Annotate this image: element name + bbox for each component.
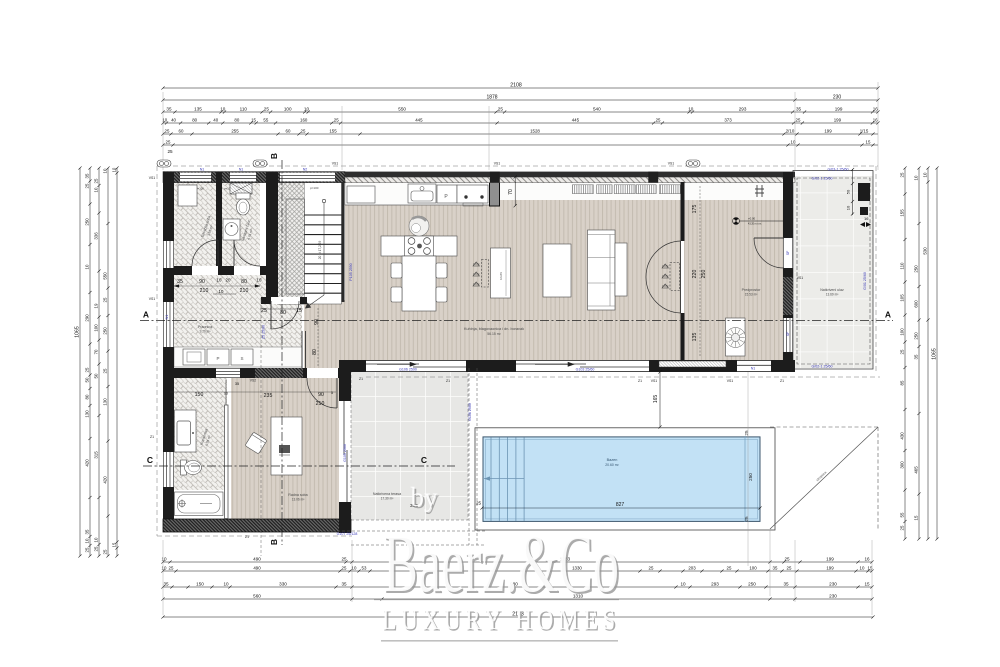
svg-text:Predprostor: Predprostor — [742, 288, 762, 292]
svg-text:Z5 25/60: Z5 25/60 — [262, 325, 266, 339]
svg-text:130: 130 — [85, 410, 90, 418]
svg-text:15: 15 — [864, 582, 870, 587]
svg-text:100: 100 — [284, 107, 292, 112]
svg-text:G106 2590: G106 2590 — [399, 368, 417, 372]
svg-text:25: 25 — [656, 118, 661, 123]
svg-text:35: 35 — [796, 107, 802, 112]
svg-text:150: 150 — [195, 392, 204, 398]
svg-text:25: 25 — [264, 107, 270, 112]
svg-text:15.53 m²: 15.53 m² — [745, 293, 758, 297]
svg-text:16: 16 — [873, 107, 879, 112]
svg-text:10: 10 — [352, 566, 357, 571]
svg-text:19: 19 — [94, 303, 99, 308]
svg-text:60: 60 — [179, 129, 184, 134]
svg-text:175: 175 — [692, 205, 698, 214]
svg-text:235: 235 — [264, 393, 273, 399]
svg-text:25: 25 — [649, 566, 654, 571]
svg-text:55: 55 — [263, 118, 268, 123]
svg-text:15: 15 — [914, 515, 919, 520]
svg-text:25: 25 — [85, 547, 90, 552]
svg-text:13.06 m²: 13.06 m² — [292, 498, 305, 502]
svg-text:1878: 1878 — [486, 95, 497, 101]
svg-text:220: 220 — [692, 270, 698, 279]
svg-text:330: 330 — [279, 582, 287, 587]
svg-text:G103 25/60: G103 25/60 — [576, 368, 595, 372]
svg-text:N1: N1 — [751, 367, 756, 371]
svg-text:5: 5 — [331, 391, 333, 395]
svg-text:25: 25 — [165, 129, 170, 134]
svg-text:35: 35 — [235, 382, 239, 386]
svg-text:17.30 m²: 17.30 m² — [381, 497, 394, 501]
svg-text:G108 2560: G108 2560 — [468, 403, 472, 421]
svg-text:Praonica: Praonica — [198, 325, 212, 329]
svg-text:9.76 m²: 9.76 m² — [200, 330, 211, 334]
svg-text:25: 25 — [900, 525, 905, 530]
svg-text:600: 600 — [914, 300, 919, 308]
svg-text:293: 293 — [711, 582, 719, 587]
svg-text:P105 2590: P105 2590 — [349, 263, 353, 280]
svg-text:A: A — [885, 310, 891, 320]
svg-text:15: 15 — [866, 140, 871, 145]
svg-text:10: 10 — [112, 167, 117, 172]
svg-text:80: 80 — [192, 118, 197, 123]
svg-text:70: 70 — [508, 189, 514, 195]
svg-text:155: 155 — [900, 209, 905, 217]
svg-text:110: 110 — [900, 262, 905, 270]
svg-text:827: 827 — [616, 502, 625, 508]
svg-text:80: 80 — [85, 394, 90, 399]
svg-text:230: 230 — [833, 95, 842, 101]
svg-text:VS1: VS1 — [494, 162, 501, 166]
svg-text:105: 105 — [900, 294, 905, 302]
svg-text:490: 490 — [253, 566, 261, 571]
svg-text:560: 560 — [253, 594, 261, 599]
svg-text:G107 25/128: G107 25/128 — [337, 532, 358, 536]
svg-text:N1: N1 — [239, 168, 244, 172]
svg-text:10: 10 — [217, 278, 222, 283]
svg-text:55: 55 — [900, 512, 905, 517]
svg-text:445: 445 — [415, 118, 423, 123]
svg-text:10: 10 — [914, 175, 919, 180]
svg-text:1/15: 1/15 — [860, 129, 869, 134]
svg-text:50: 50 — [846, 189, 851, 194]
svg-text:16: 16 — [864, 216, 869, 221]
svg-text:Z1: Z1 — [359, 377, 363, 381]
svg-text:LUXURY HOMES: LUXURY HOMES — [382, 605, 620, 636]
svg-text:10: 10 — [94, 187, 99, 192]
svg-text:25: 25 — [900, 349, 905, 354]
svg-text:10: 10 — [94, 537, 99, 542]
svg-text:by: by — [411, 482, 439, 512]
svg-text:35: 35 — [773, 566, 778, 571]
svg-text:10: 10 — [304, 107, 310, 112]
svg-text:10: 10 — [161, 557, 167, 562]
svg-text:15: 15 — [251, 118, 256, 123]
svg-text:1528: 1528 — [530, 129, 540, 134]
svg-text:540: 540 — [593, 107, 601, 112]
svg-text:Baerz.&Co: Baerz.&Co — [383, 517, 619, 610]
svg-text:10: 10 — [688, 107, 694, 112]
svg-text:135: 135 — [194, 107, 202, 112]
svg-text:250: 250 — [85, 218, 90, 226]
svg-text:+0.00: +0.00 — [748, 217, 756, 221]
svg-text:250: 250 — [914, 332, 919, 340]
svg-text:20 st 17,2/29: 20 st 17,2/29 — [318, 241, 322, 260]
svg-text:199: 199 — [826, 557, 834, 562]
svg-text:B: B — [269, 153, 279, 159]
svg-text:15: 15 — [112, 542, 117, 547]
svg-text:90: 90 — [199, 279, 205, 285]
svg-text:135: 135 — [692, 333, 698, 342]
svg-text:80: 80 — [312, 349, 318, 355]
svg-text:N2: N2 — [303, 168, 308, 172]
svg-text:290: 290 — [85, 314, 90, 322]
svg-text:90: 90 — [314, 319, 320, 325]
svg-text:Z1: Z1 — [446, 379, 450, 383]
svg-text:VS2: VS2 — [250, 379, 257, 383]
svg-text:25: 25 — [103, 297, 108, 302]
svg-text:VS1: VS1 — [332, 162, 339, 166]
svg-text:S: S — [240, 356, 243, 361]
svg-text:20.60 m²: 20.60 m² — [605, 463, 619, 467]
svg-text:230: 230 — [829, 594, 837, 599]
svg-text:25: 25 — [169, 566, 174, 571]
svg-text:10: 10 — [846, 205, 851, 210]
svg-text:35: 35 — [166, 107, 172, 112]
svg-text:35: 35 — [783, 582, 789, 587]
svg-text:35: 35 — [163, 582, 169, 587]
svg-text:199: 199 — [835, 107, 843, 112]
svg-text:60: 60 — [286, 129, 291, 134]
svg-text:Z1: Z1 — [150, 435, 154, 439]
svg-text:50: 50 — [94, 373, 99, 378]
svg-text:10: 10 — [923, 172, 928, 177]
svg-text:Natkriveni ulaz: Natkriveni ulaz — [820, 288, 844, 292]
svg-text:35: 35 — [85, 529, 90, 534]
svg-text:10: 10 — [860, 566, 865, 571]
svg-text:80: 80 — [241, 279, 247, 285]
svg-text:40: 40 — [171, 118, 176, 123]
svg-text:P: P — [216, 356, 219, 361]
svg-text:1065: 1065 — [932, 348, 938, 360]
svg-text:25: 25 — [85, 367, 90, 372]
svg-text:Natkrivena terasa: Natkrivena terasa — [373, 492, 401, 496]
svg-text:155: 155 — [329, 129, 337, 134]
svg-text:25: 25 — [744, 430, 749, 436]
svg-text:25: 25 — [94, 178, 99, 183]
svg-text:VS1: VS1 — [149, 176, 156, 180]
svg-text:VS1: VS1 — [651, 379, 658, 383]
svg-text:G/01 25/60: G/01 25/60 — [863, 272, 867, 290]
svg-text:25: 25 — [166, 140, 171, 145]
svg-text:G/02-1 25/60: G/02-1 25/60 — [812, 177, 833, 181]
svg-text:SF: SF — [786, 331, 790, 336]
svg-text:KAMIN: KAMIN — [499, 272, 503, 280]
svg-text:315: 315 — [94, 451, 99, 459]
svg-text:VS1: VS1 — [797, 276, 804, 280]
svg-text:420: 420 — [85, 459, 90, 467]
svg-text:373: 373 — [724, 118, 732, 123]
svg-text:10: 10 — [257, 278, 262, 283]
svg-text:250: 250 — [914, 265, 919, 273]
svg-text:250: 250 — [701, 270, 707, 279]
svg-text:40: 40 — [213, 118, 218, 123]
svg-text:430: 430 — [900, 432, 905, 440]
svg-text:10: 10 — [223, 582, 229, 587]
svg-text:Bazen: Bazen — [607, 458, 618, 462]
svg-text:C: C — [147, 455, 153, 465]
svg-text:35: 35 — [85, 173, 90, 178]
svg-text:203: 203 — [688, 566, 696, 571]
svg-text:25: 25 — [103, 368, 108, 373]
svg-text:A: A — [143, 310, 149, 320]
svg-text:10: 10 — [219, 289, 224, 294]
svg-text:25: 25 — [744, 516, 749, 522]
svg-text:p=100: p=100 — [310, 186, 319, 190]
svg-text:90: 90 — [318, 392, 324, 398]
svg-text:550: 550 — [398, 107, 406, 112]
svg-text:VS1: VS1 — [727, 379, 734, 383]
svg-text:199: 199 — [834, 118, 842, 123]
svg-text:230: 230 — [829, 582, 837, 587]
svg-text:16: 16 — [864, 557, 870, 562]
svg-text:165: 165 — [653, 395, 659, 404]
svg-text:53: 53 — [362, 566, 367, 571]
svg-text:100: 100 — [900, 328, 905, 336]
svg-text:10: 10 — [680, 582, 686, 587]
svg-text:550: 550 — [103, 272, 108, 280]
svg-text:210: 210 — [200, 288, 209, 294]
svg-text:465: 465 — [914, 466, 919, 474]
svg-text:110: 110 — [240, 107, 248, 112]
svg-text:B: B — [269, 539, 279, 545]
svg-text:100: 100 — [749, 566, 757, 571]
svg-text:Z1: Z1 — [780, 379, 784, 383]
svg-text:300: 300 — [900, 461, 905, 469]
svg-text:35: 35 — [177, 279, 183, 285]
svg-text:25: 25 — [900, 172, 905, 177]
svg-text:G/02-1 25/60: G/02-1 25/60 — [812, 365, 833, 369]
svg-text:43.20 m.n.m.: 43.20 m.n.m. — [748, 223, 762, 226]
svg-text:Radna soba: Radna soba — [288, 493, 307, 497]
svg-text:210: 210 — [316, 401, 325, 407]
svg-text:C: C — [421, 455, 427, 465]
svg-text:50: 50 — [85, 377, 90, 382]
svg-text:25: 25 — [85, 183, 90, 188]
svg-text:85: 85 — [900, 380, 905, 385]
svg-text:25: 25 — [94, 546, 99, 551]
svg-text:G/03-1 25/60: G/03-1 25/60 — [828, 168, 849, 172]
svg-text:445: 445 — [572, 118, 580, 123]
svg-text:130: 130 — [103, 398, 108, 406]
svg-text:35: 35 — [914, 354, 919, 359]
svg-text:25: 25 — [784, 557, 790, 562]
svg-text:250: 250 — [748, 582, 756, 587]
svg-text:25: 25 — [341, 557, 347, 562]
svg-text:2108: 2108 — [510, 83, 522, 89]
svg-text:SF: SF — [786, 250, 790, 255]
svg-text:2/10: 2/10 — [786, 129, 795, 134]
svg-text:199: 199 — [824, 129, 832, 134]
svg-text:10: 10 — [162, 566, 167, 571]
svg-text:25: 25 — [301, 129, 306, 134]
svg-text:80: 80 — [234, 118, 239, 123]
svg-text:255: 255 — [231, 129, 239, 134]
svg-text:150: 150 — [196, 582, 204, 587]
svg-text:10: 10 — [220, 107, 226, 112]
svg-text:Z1: Z1 — [638, 379, 642, 383]
svg-text:293: 293 — [739, 107, 747, 112]
svg-text:20: 20 — [226, 278, 231, 283]
svg-text:530: 530 — [923, 247, 928, 255]
svg-text:56.15 m²: 56.15 m² — [487, 332, 501, 336]
svg-text:210: 210 — [240, 288, 249, 294]
svg-text:10: 10 — [85, 264, 90, 269]
svg-text:80: 80 — [280, 310, 286, 316]
svg-text:25: 25 — [167, 149, 173, 154]
svg-text:25: 25 — [787, 566, 792, 571]
svg-text:16: 16 — [873, 118, 878, 123]
svg-text:Z1: Z1 — [245, 535, 249, 539]
svg-text:G105 2560: G105 2560 — [343, 444, 347, 462]
svg-text:1065: 1065 — [75, 326, 81, 338]
svg-text:25: 25 — [498, 107, 504, 112]
svg-text:N1: N1 — [200, 168, 205, 172]
svg-text:70: 70 — [94, 349, 99, 354]
svg-text:25: 25 — [103, 549, 108, 554]
svg-text:199: 199 — [826, 566, 834, 571]
svg-text:250: 250 — [103, 327, 108, 335]
svg-text:420: 420 — [103, 476, 108, 484]
svg-text:160: 160 — [300, 118, 308, 123]
svg-text:35: 35 — [341, 582, 347, 587]
svg-text:VS1: VS1 — [149, 297, 156, 301]
svg-text:25: 25 — [727, 566, 732, 571]
svg-text:13.69 m²: 13.69 m² — [826, 293, 839, 297]
svg-text:Kuhinja, blagovaonica i dn. bo: Kuhinja, blagovaonica i dn. boravak — [464, 327, 524, 331]
svg-text:10: 10 — [85, 538, 90, 543]
svg-text:250: 250 — [748, 473, 753, 481]
svg-text:336: 336 — [94, 232, 99, 240]
svg-text:25: 25 — [796, 118, 801, 123]
svg-text:25: 25 — [476, 501, 482, 506]
svg-text:25: 25 — [334, 118, 339, 123]
svg-text:100: 100 — [94, 324, 99, 332]
svg-text:490: 490 — [253, 557, 261, 562]
svg-text:10: 10 — [103, 168, 108, 173]
svg-text:VS1: VS1 — [668, 162, 675, 166]
svg-text:25: 25 — [342, 566, 347, 571]
svg-text:N1: N1 — [165, 315, 169, 320]
